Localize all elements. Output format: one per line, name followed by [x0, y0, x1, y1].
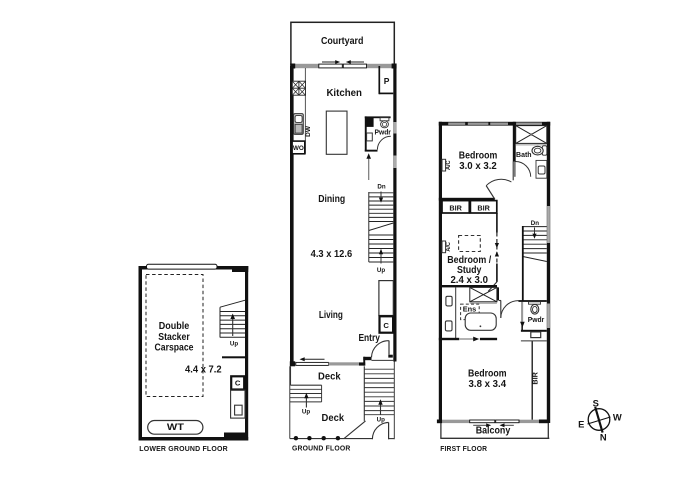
- svg-text:Up: Up: [377, 267, 385, 274]
- svg-text:Stacker: Stacker: [158, 332, 190, 343]
- svg-text:A/C: A/C: [446, 242, 452, 252]
- svg-text:P: P: [384, 76, 390, 86]
- svg-text:Ens: Ens: [463, 305, 477, 314]
- svg-text:Double: Double: [159, 321, 190, 332]
- svg-text:S: S: [593, 397, 599, 408]
- svg-text:Bath: Bath: [516, 150, 532, 159]
- svg-text:Bedroom: Bedroom: [459, 151, 498, 162]
- svg-text:Up: Up: [230, 341, 238, 348]
- svg-text:Dining: Dining: [318, 194, 345, 205]
- svg-text:Dn: Dn: [377, 184, 385, 191]
- svg-text:Up: Up: [377, 416, 385, 423]
- svg-text:N: N: [600, 432, 607, 443]
- svg-text:Kitchen: Kitchen: [326, 88, 362, 99]
- svg-text:Dn: Dn: [531, 220, 539, 227]
- svg-text:Pwdr: Pwdr: [374, 127, 391, 136]
- svg-text:C: C: [383, 321, 389, 330]
- svg-text:Deck: Deck: [318, 372, 341, 383]
- svg-text:4.3 x 12.6: 4.3 x 12.6: [311, 249, 353, 260]
- svg-text:LOWER GROUND FLOOR: LOWER GROUND FLOOR: [139, 444, 228, 453]
- svg-text:4.4 x 7.2: 4.4 x 7.2: [185, 364, 222, 375]
- svg-text:Balcony: Balcony: [476, 425, 511, 436]
- svg-text:C: C: [235, 379, 241, 388]
- svg-text:3.0 x 3.2: 3.0 x 3.2: [459, 161, 497, 172]
- svg-text:Entry: Entry: [358, 333, 380, 344]
- svg-text:Carspace: Carspace: [155, 342, 194, 353]
- svg-text:E: E: [578, 418, 584, 429]
- svg-text:BIR: BIR: [449, 203, 462, 212]
- svg-text:FIRST FLOOR: FIRST FLOOR: [440, 444, 488, 453]
- svg-text:Courtyard: Courtyard: [321, 36, 364, 47]
- svg-text:GROUND FLOOR: GROUND FLOOR: [292, 444, 351, 453]
- svg-text:BIR: BIR: [531, 372, 540, 385]
- svg-text:3.8 x 3.4: 3.8 x 3.4: [469, 379, 507, 390]
- svg-text:WT: WT: [167, 421, 184, 432]
- svg-text:W: W: [613, 412, 622, 423]
- svg-text:Living: Living: [319, 310, 343, 321]
- svg-text:Up: Up: [302, 409, 310, 416]
- svg-text:Deck: Deck: [322, 413, 345, 424]
- svg-text:DW: DW: [305, 125, 312, 137]
- svg-text:A/C: A/C: [446, 160, 452, 170]
- svg-text:WO: WO: [293, 145, 304, 152]
- svg-text:BIR: BIR: [477, 203, 490, 212]
- svg-text:Pwdr: Pwdr: [528, 315, 545, 324]
- svg-text:2.4 x 3.0: 2.4 x 3.0: [450, 275, 488, 286]
